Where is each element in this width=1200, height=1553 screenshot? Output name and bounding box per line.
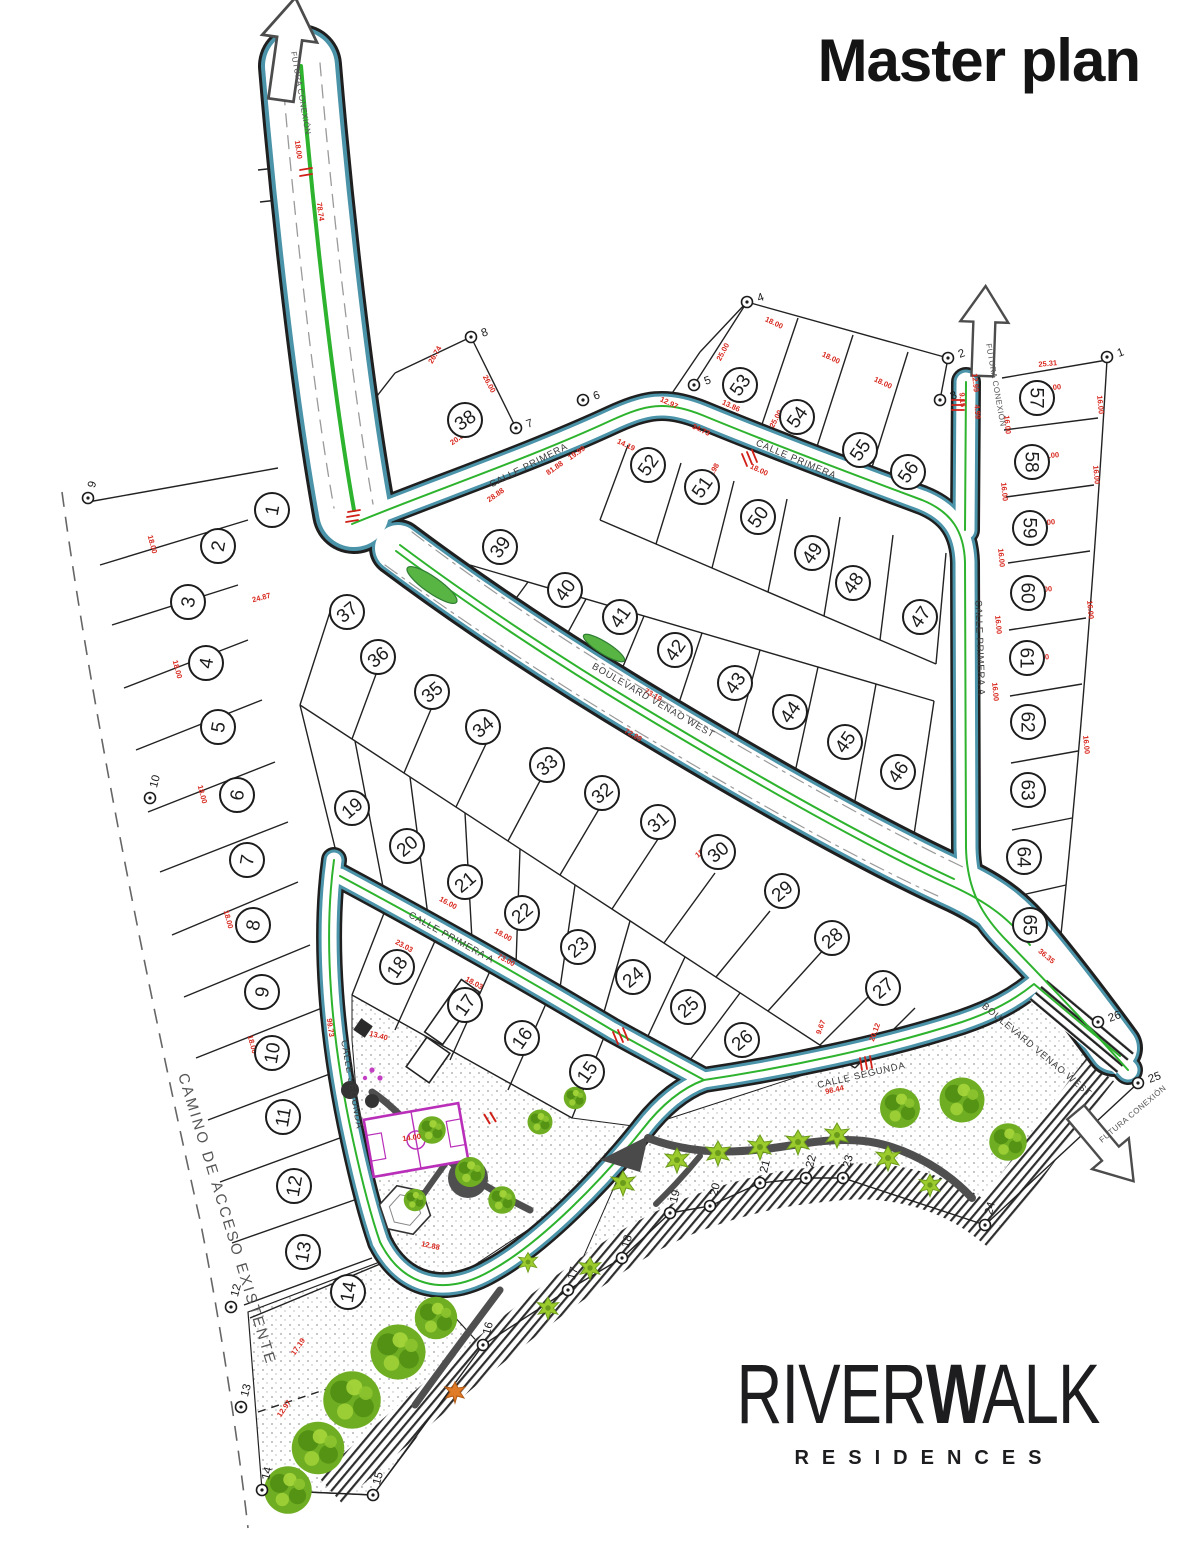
lot-marker: 2: [201, 529, 235, 563]
lot-number: 65: [1019, 914, 1040, 935]
lot-marker: 51: [685, 470, 719, 504]
lot-marker: 29: [765, 874, 799, 908]
survey-point-number: 6: [592, 389, 602, 402]
survey-point-number: 13: [239, 1383, 254, 1398]
dimension-label: 12.99: [970, 373, 981, 392]
dimension-label: 18.00: [749, 462, 770, 478]
survey-point-number: 7: [525, 417, 535, 430]
lot-number: 58: [1021, 451, 1042, 472]
lot-marker: 26: [725, 1023, 759, 1057]
lot-marker: 60: [1011, 576, 1045, 610]
dimension-label: 16.00: [996, 548, 1007, 567]
lot-marker: 6: [220, 778, 254, 812]
dimension-label: 24.87: [251, 591, 271, 605]
dimension-label: 26.74: [426, 344, 444, 365]
lot-marker: 14: [331, 1275, 365, 1309]
dimension-label: 25.31: [1038, 358, 1057, 369]
lot-marker: 49: [795, 536, 829, 570]
lot-marker: 37: [330, 595, 364, 629]
lot-number: 62: [1017, 711, 1038, 732]
dimension-label: 26.00: [481, 373, 498, 394]
lot-marker: 38: [448, 403, 482, 437]
lot-marker: 40: [548, 573, 582, 607]
lot-marker: 36: [361, 640, 395, 674]
lot-marker: 22: [505, 896, 539, 930]
future-connection-label: FUTURA CONEXIÓN: [1098, 1083, 1168, 1144]
lot-marker: 65: [1013, 908, 1047, 942]
lot-marker: 58: [1015, 445, 1049, 479]
lot-marker: 24: [616, 960, 650, 994]
dimension-label: 18.00: [764, 315, 785, 331]
lot-marker: 64: [1007, 840, 1041, 874]
dimension-label: 16.00: [1091, 465, 1102, 484]
lot-marker: 23: [561, 930, 595, 964]
dimension-label: 18.00: [146, 534, 160, 554]
brand-logo: RIVERWALK RESIDENCES: [688, 1352, 1148, 1470]
dimension-label: 16.00: [1081, 735, 1092, 754]
lot-marker: 61: [1010, 641, 1044, 675]
access-road-dashed-line: [62, 492, 248, 1528]
survey-point-number: 5: [703, 374, 713, 387]
lot-marker: 46: [881, 755, 915, 789]
survey-point: 2: [943, 347, 967, 363]
lot-marker: 12: [277, 1169, 311, 1203]
brand-name: RIVERWALK: [706, 1352, 1129, 1436]
lot-marker: 62: [1011, 705, 1045, 739]
lot-marker: 47: [903, 600, 937, 634]
survey-point: 7: [511, 417, 535, 433]
lot-marker: 15: [570, 1055, 604, 1089]
lot-marker: 44: [773, 695, 807, 729]
dimension-label: 16.00: [1095, 395, 1106, 414]
lot-marker: 21: [448, 865, 482, 899]
lot-marker: 18: [380, 950, 414, 984]
lot-marker: 52: [631, 448, 665, 482]
master-plan-page: CAMINO DE ACCESO EXISTENTE 78.7418.0026.…: [0, 0, 1200, 1553]
lot-number: 14: [337, 1280, 361, 1305]
lot-marker: 39: [483, 530, 517, 564]
lot-number: 13: [292, 1240, 316, 1264]
lot-marker: 28: [815, 921, 849, 955]
master-plan-drawing: CAMINO DE ACCESO EXISTENTE 78.7418.0026.…: [0, 0, 1200, 1553]
lot-marker: 54: [780, 400, 814, 434]
dimension-label: 18.00: [873, 375, 894, 391]
lot-marker: 53: [723, 368, 757, 402]
page-title: Master plan: [700, 26, 1140, 95]
lot-number: 60: [1017, 582, 1038, 603]
lot-marker: 20: [390, 829, 424, 863]
dimension-label: 16.00: [1085, 600, 1096, 619]
lot-marker: 4: [189, 646, 223, 680]
lot-marker: 10: [255, 1036, 289, 1070]
lot-marker: 7: [230, 843, 264, 877]
lot-number: 63: [1017, 779, 1038, 800]
lot-marker: 48: [836, 566, 870, 600]
dimension-label: 9.67: [814, 1019, 827, 1036]
lot-marker: 27: [866, 971, 900, 1005]
brand-name-suffix: ALK: [982, 1347, 1099, 1441]
dimension-label: 16.00: [993, 615, 1004, 634]
dimension-label: 4.99: [972, 404, 982, 419]
lot-marker: 17: [448, 988, 482, 1022]
survey-point-number: 9: [86, 480, 99, 489]
lot-marker: 55: [843, 433, 877, 467]
brand-subtitle: RESIDENCES: [688, 1447, 1148, 1470]
survey-point-number: 4: [756, 291, 767, 305]
survey-point-number: 1: [1116, 346, 1126, 359]
dimension-label: 16.00: [999, 482, 1010, 501]
lot-marker: 9: [245, 975, 279, 1009]
lot-marker: 31: [641, 805, 675, 839]
dimension-label: 18.00: [821, 350, 842, 366]
street-name-label: CALLE PRIMERA A: [407, 910, 496, 966]
lot-number: 10: [261, 1041, 285, 1065]
survey-point-number: 8: [480, 326, 490, 339]
future-connection-label: FUTURA CONEXIÓN: [984, 343, 1008, 428]
survey-point-number: 25: [1147, 1070, 1163, 1086]
lot-marker: 57: [1020, 381, 1054, 415]
dimension-label: 18.00: [493, 926, 514, 943]
lot-marker: 63: [1011, 773, 1045, 807]
survey-point-number: 10: [148, 774, 163, 789]
survey-point: 8: [466, 326, 490, 342]
lot-marker: 41: [603, 600, 637, 634]
lot-number: 59: [1019, 517, 1040, 538]
lot-marker: 11: [266, 1100, 300, 1134]
lot-marker: 59: [1013, 511, 1047, 545]
lot-marker: 33: [530, 748, 564, 782]
lot-marker: 56: [891, 455, 925, 489]
lot-number: 61: [1016, 647, 1037, 668]
dimension-label: 9.15: [957, 392, 967, 407]
survey-point: 12: [226, 1283, 244, 1313]
dimension-label: 16.00: [990, 682, 1001, 701]
survey-point: 10: [145, 774, 163, 804]
lot-number: 12: [283, 1174, 307, 1198]
brand-name-w: W: [926, 1347, 982, 1441]
lot-marker: 16: [505, 1021, 539, 1055]
lot-marker: 5: [201, 710, 235, 744]
lot-marker: 43: [718, 666, 752, 700]
survey-point: 1: [1102, 346, 1126, 362]
lot-marker: 1: [255, 493, 289, 527]
brand-name-prefix: RIVER: [737, 1347, 926, 1441]
lot-number: 64: [1013, 846, 1034, 868]
survey-point: 4: [742, 291, 767, 307]
survey-point: 5: [689, 374, 713, 390]
lot-marker: 30: [701, 835, 735, 869]
lot-marker: 50: [741, 500, 775, 534]
lot-marker: 25: [671, 990, 705, 1024]
lot-marker: 32: [585, 776, 619, 810]
lot-number: 11: [272, 1106, 296, 1129]
lot-number: 57: [1026, 387, 1047, 408]
lot-marker: 45: [828, 725, 862, 759]
dimension-label: 18.00: [196, 784, 210, 804]
lot-marker: 13: [286, 1235, 320, 1269]
dimension-label: 25.00: [714, 341, 731, 362]
lot-marker: 3: [171, 585, 205, 619]
survey-point-number: 2: [957, 347, 967, 360]
lot-marker: 35: [415, 675, 449, 709]
survey-point: 13: [236, 1383, 254, 1413]
access-road-label: CAMINO DE ACCESO EXISTENTE: [174, 1071, 279, 1367]
lot-marker: 19: [335, 791, 369, 825]
lot-marker: 8: [236, 908, 270, 942]
lot-marker: 34: [466, 710, 500, 744]
survey-point: 6: [578, 389, 602, 405]
dimension-label: 18.00: [222, 909, 236, 929]
lot-marker: 42: [658, 633, 692, 667]
